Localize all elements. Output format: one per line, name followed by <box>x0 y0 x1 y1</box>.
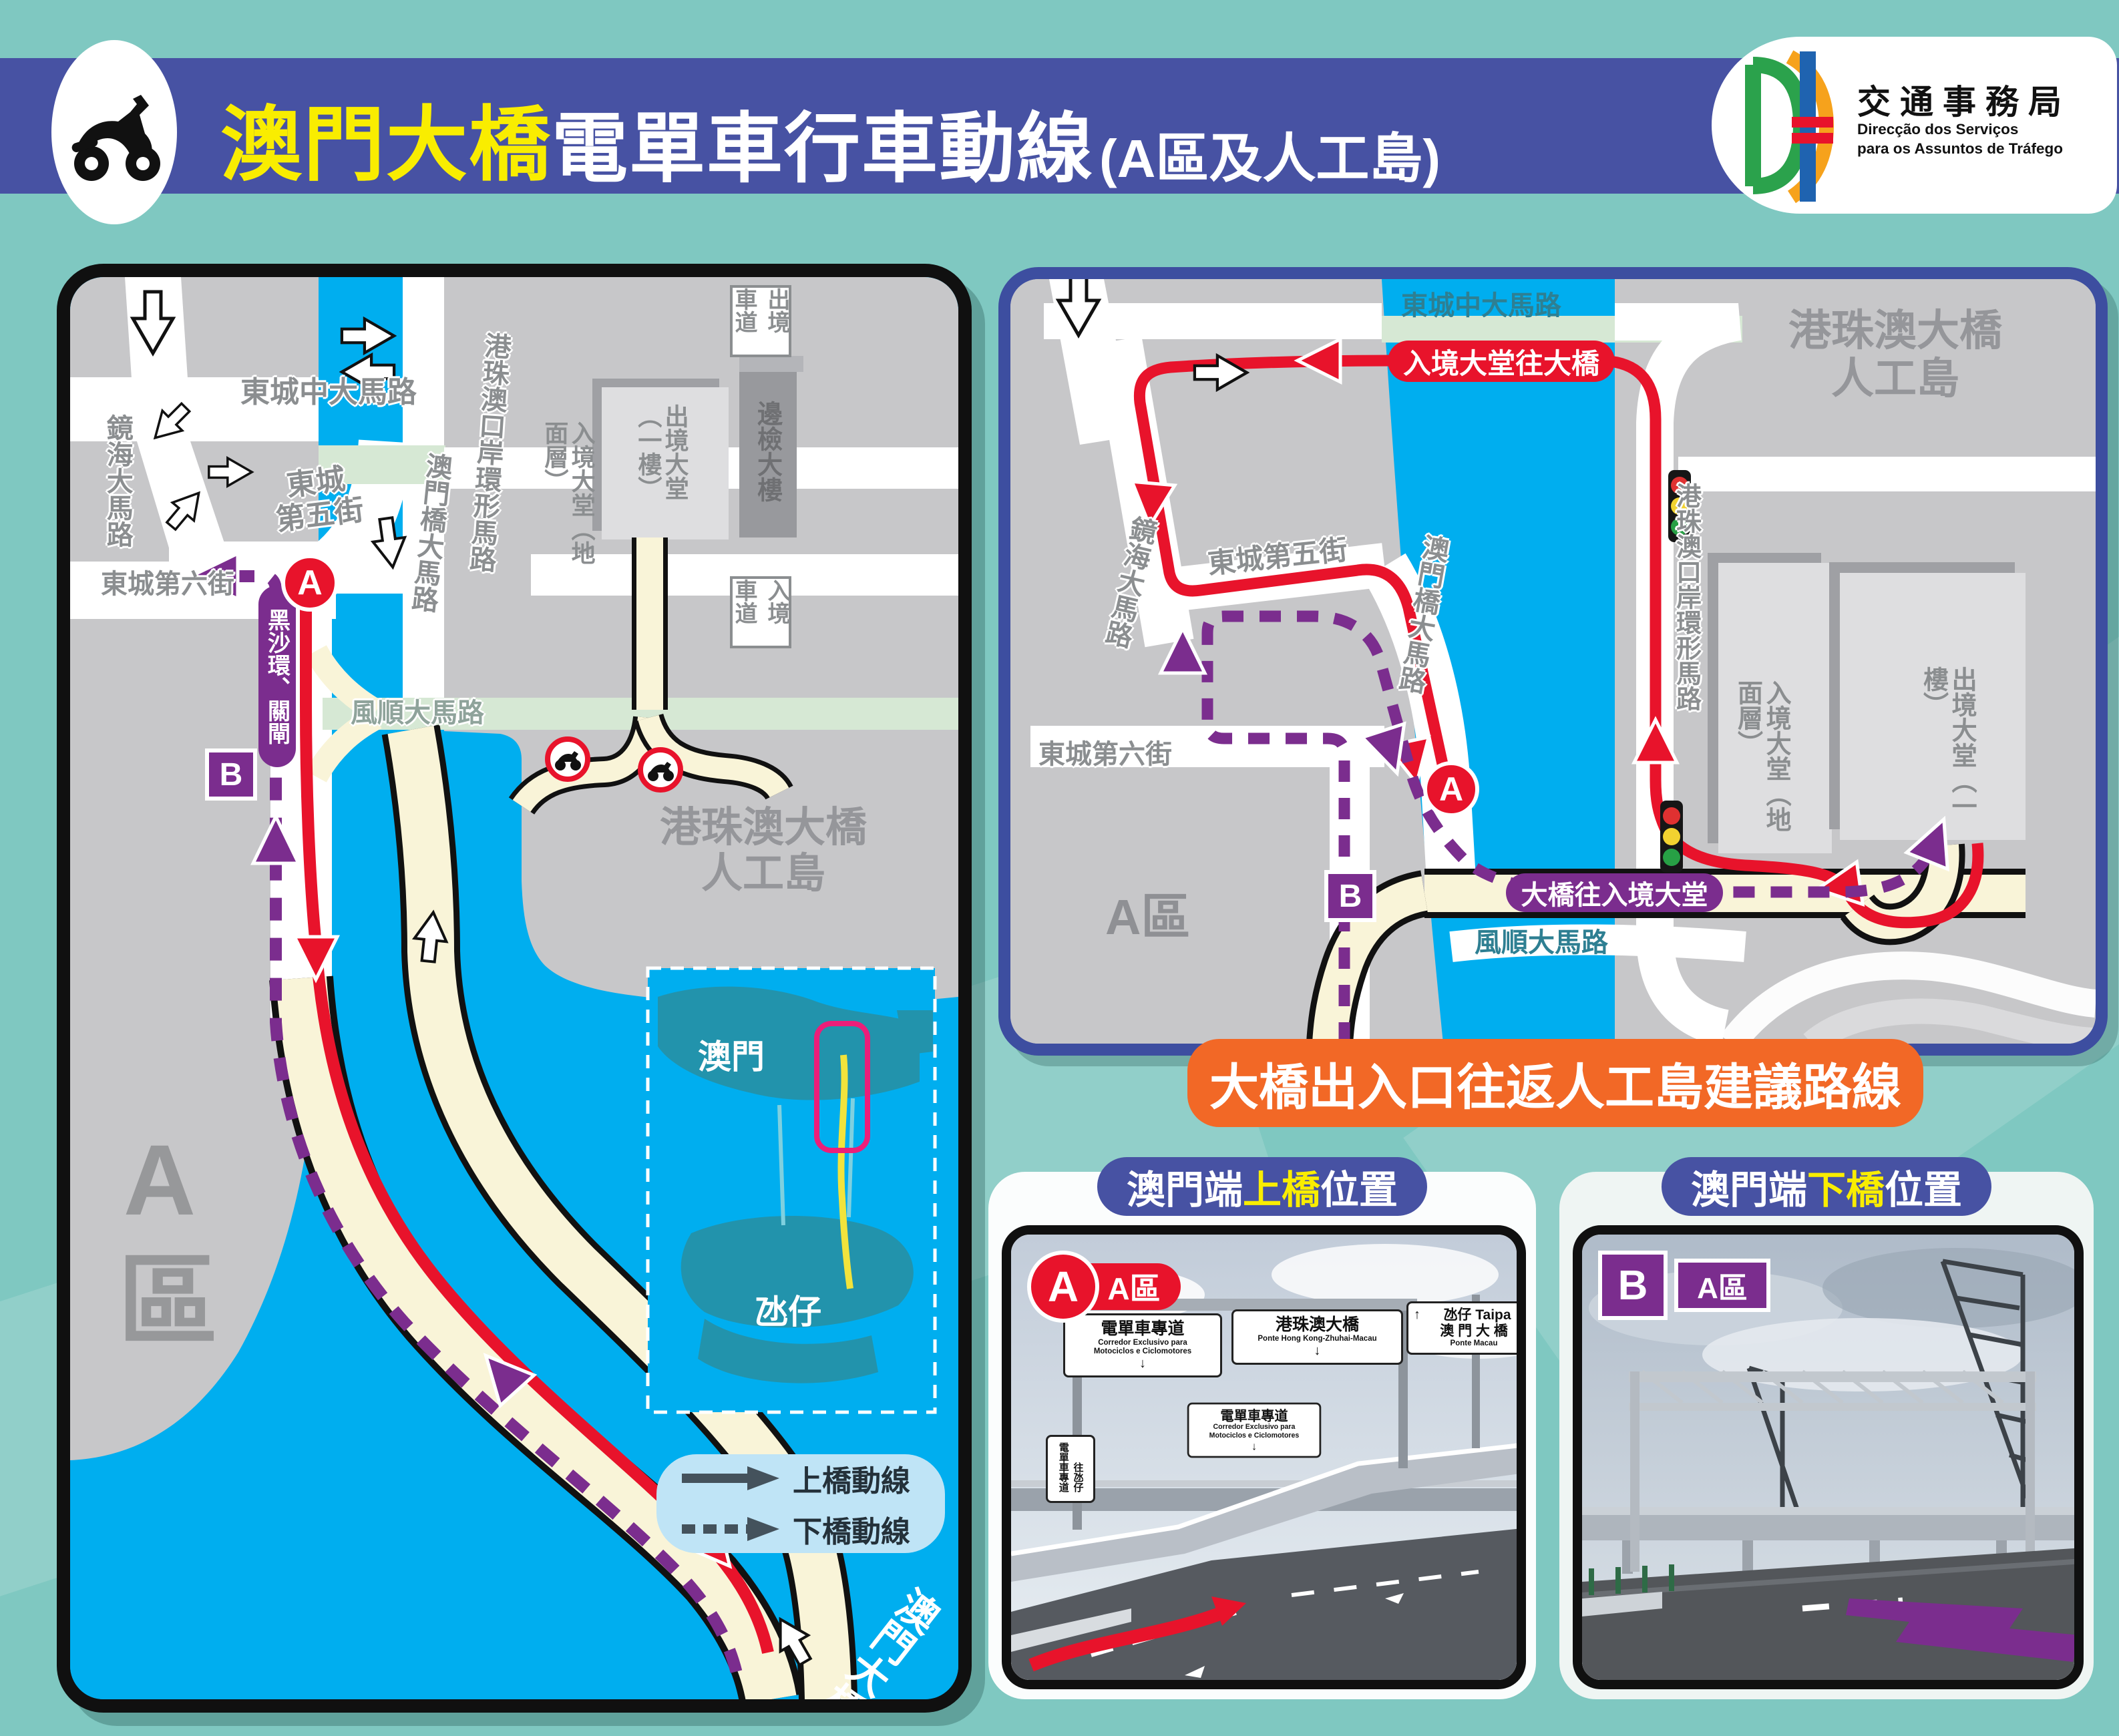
sign1-arrow: ↓ <box>1071 1356 1215 1371</box>
sign-moto-lane-small: 電單車專道 往氹仔 <box>1046 1435 1095 1503</box>
logo-cn-text: 交通事務局 <box>1857 75 2071 124</box>
road-dongcheng6: 東城第六街 <box>1038 740 1172 770</box>
logo-pt-line1: Direcção dos Serviços <box>1857 121 2018 138</box>
road-dongcheng-central: 東城中大馬路 <box>1401 291 1561 321</box>
label-arrival-hall: 入境大堂（地面層） <box>1733 680 1790 840</box>
marker-b: B <box>205 748 257 801</box>
card-b-title-post: 位置 <box>1885 1158 1962 1215</box>
inset-map <box>648 968 935 1412</box>
purple-route-pill: 大橋往入境大堂 <box>1506 873 1723 912</box>
sign3-l2: 澳 門 大 橋 <box>1414 1323 1526 1339</box>
sign-taipa-macau-bridge: ↑ 氹仔 Taipa 澳 門 大 橋 Ponte Macau <box>1406 1301 1526 1355</box>
inset-macau: 澳門 <box>698 1030 765 1078</box>
road-jinghai: 鏡海大馬路 <box>102 414 132 581</box>
sign-moto-lane-1: 電單車專道 Corredor Exclusivo para Motociclos… <box>1063 1313 1222 1377</box>
photo-a-zone: A區 <box>1087 1263 1181 1310</box>
inset-taipa: 氹仔 <box>755 1285 821 1333</box>
legend-down-row: 下橋動線 <box>679 1508 922 1550</box>
label-zone-a: A區 <box>1105 890 1190 945</box>
marker-a: A <box>281 554 339 612</box>
photo-a-badge: A A區 <box>1027 1251 1181 1323</box>
label-entry-lane: 入境車道 <box>730 576 791 648</box>
sign4-pt2: Motociclos e Ciclomotores <box>1194 1432 1314 1440</box>
card-a-title-pre: 澳門端 <box>1127 1158 1243 1215</box>
card-a-title-mid: 上橋 <box>1243 1158 1320 1215</box>
legend-dashed-arrow-icon <box>679 1517 779 1541</box>
photo-a: 電單車專道 Corredor Exclusivo para Motociclos… <box>1002 1225 1526 1689</box>
road-dongcheng-central: 東城中大馬路 <box>240 376 417 409</box>
sign2-pt: Ponte Hong Kong-Zhuhai-Macau <box>1239 1335 1396 1343</box>
sign3-l3: Ponte Macau <box>1414 1339 1526 1348</box>
sign2-cn: 港珠澳大橋 <box>1239 1315 1396 1335</box>
photo-card-down-bridge: 澳門端下橋位置 <box>1559 1172 2094 1699</box>
title-suffix: (A區及人工島) <box>1099 116 1440 197</box>
sign2-arrow: ↓ <box>1239 1343 1396 1359</box>
card-b-title-mid: 下橋 <box>1807 1158 1885 1215</box>
red-route-pill: 入境大堂往大橋 <box>1388 341 1615 382</box>
sign5-l1: 電單車專道 <box>1058 1442 1069 1492</box>
label-departure-hall: 出境大堂（一樓） <box>1919 666 1975 820</box>
sign1-pt2: Motociclos e Ciclomotores <box>1071 1347 1215 1356</box>
photo-b-zone: A區 <box>1674 1259 1770 1312</box>
label-exit-lane: 出境車道 <box>730 285 791 357</box>
label-island-name: 港珠澳大橋 人工島 <box>630 805 897 897</box>
left-map: 東城中大馬路 出境車道 鏡海大馬路 東城 第五街 澳門橋大馬路 東城第六街 黑沙… <box>57 264 972 1713</box>
sign3-arrow: ↑ <box>1414 1307 1420 1323</box>
right-map: 東城中大馬路 入境大堂往大橋 鏡海大馬路 東城第五街 澳門橋大馬路 東城第六街 … <box>998 267 2108 1056</box>
sign4-arrow: ↓ <box>1194 1440 1314 1452</box>
page-title: 澳門大橋電單車行車動線(A區及人工島) <box>220 79 1440 197</box>
road-fengshun: 風順大馬路 <box>1475 928 1608 958</box>
motorcycle-icon <box>51 40 177 224</box>
road-fengshun: 風順大馬路 <box>351 698 484 728</box>
legend-down-label: 下橋動線 <box>793 1508 910 1550</box>
sign1-pt1: Corredor Exclusivo para <box>1071 1339 1215 1347</box>
label-zone-a: A區 <box>104 1124 216 1364</box>
legend-solid-arrow-icon <box>679 1466 779 1490</box>
card-b-title-pre: 澳門端 <box>1691 1158 1807 1215</box>
sign3-l1: 氹仔 Taipa <box>1414 1307 1526 1323</box>
sign-hzm-bridge: 港珠澳大橋 Ponte Hong Kong-Zhuhai-Macau ↓ <box>1231 1309 1403 1365</box>
dsat-logo-icon <box>1726 45 1850 208</box>
card-a-title-post: 位置 <box>1320 1158 1398 1215</box>
sign4-pt1: Corredor Exclusivo para <box>1194 1424 1314 1432</box>
photo-a-marker: A <box>1027 1251 1099 1323</box>
legend: 上橋動線 下橋動線 <box>656 1454 945 1553</box>
road-dongcheng5: 東城 第五街 <box>270 461 365 537</box>
title-bridge: 澳門大橋 <box>220 79 552 197</box>
marker-b: B <box>1324 870 1376 922</box>
road-ring: 港珠澳口岸環形馬路 <box>1672 483 1700 750</box>
photo-b: B A區 <box>1573 1225 2084 1689</box>
sign-moto-lane-2: 電單車專道 Corredor Exclusivo para Motociclos… <box>1187 1403 1322 1458</box>
card-a-title: 澳門端上橋位置 <box>1097 1157 1427 1216</box>
legend-up-label: 上橋動線 <box>793 1457 910 1500</box>
sign5-l2: 往氹仔 <box>1072 1462 1083 1492</box>
legend-up-row: 上橋動線 <box>679 1457 922 1500</box>
label-arrival-hall: 入境大堂（地面層） <box>541 421 595 568</box>
suggested-route-banner: 大橋出入口往返人工島建議路線 <box>1187 1039 1923 1127</box>
poster: 澳門大橋電單車行車動線(A區及人工島) 交通事務局 Direcção dos S… <box>0 0 2119 1736</box>
card-b-title: 澳門端下橋位置 <box>1662 1157 1991 1216</box>
label-departure-hall: 出境大堂（一樓） <box>634 404 689 531</box>
dsat-logo-card: 交通事務局 Direcção dos Serviços para os Assu… <box>1712 37 2117 214</box>
road-dongcheng6: 東城第六街 <box>101 570 234 600</box>
motorcycle-glyph <box>51 40 177 224</box>
label-island-name: 港珠澳大橋 人工島 <box>1762 307 2029 403</box>
photo-card-up-bridge: 澳門端上橋位置 <box>988 1172 1536 1699</box>
photo-b-marker: B <box>1598 1251 1668 1320</box>
sign-heisha-gate: 黑沙環、關閘 <box>258 586 296 767</box>
marker-a: A <box>1423 761 1479 817</box>
title-rest: 電單車行車動線 <box>552 87 1094 197</box>
logo-pt-line2: para os Assuntos de Tráfego <box>1857 140 2063 158</box>
sign4-cn: 電單車專道 <box>1194 1408 1314 1424</box>
photo-b-badge: B A區 <box>1598 1251 1770 1320</box>
label-border-building: 邊檢大樓 <box>753 401 781 521</box>
